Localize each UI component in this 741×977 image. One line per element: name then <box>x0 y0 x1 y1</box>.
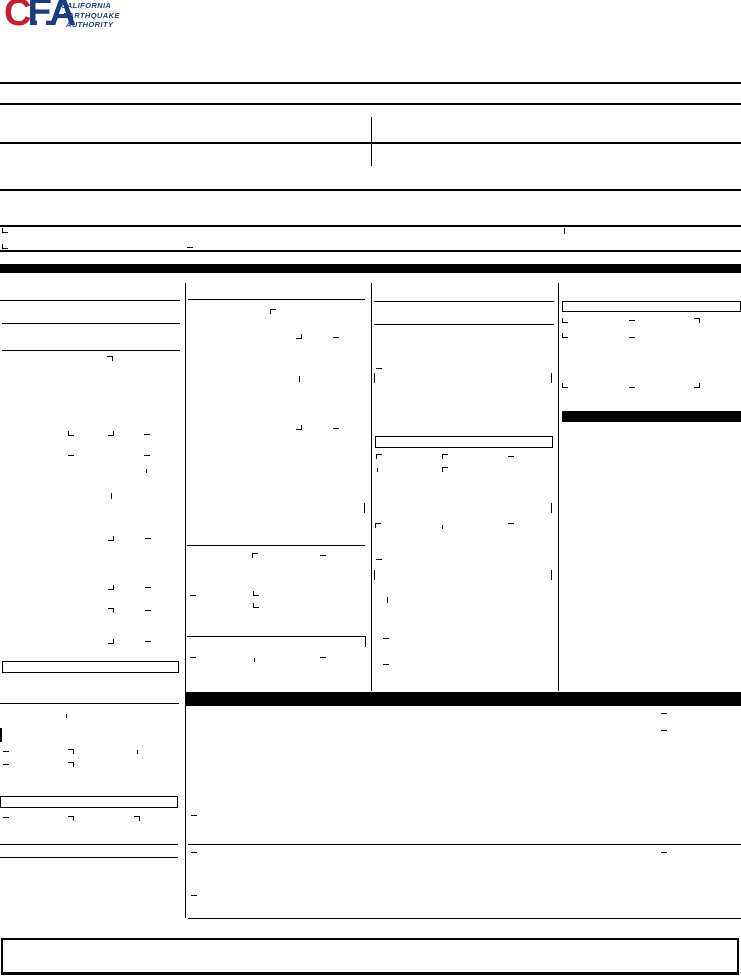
text-fragment <box>376 559 382 560</box>
text-fragment <box>383 664 389 665</box>
text-fragment <box>562 383 568 388</box>
text-fragment <box>68 762 74 767</box>
text-fragment <box>374 570 375 580</box>
text-fragment <box>253 591 259 596</box>
rule-line <box>0 857 178 858</box>
text-fragment <box>68 749 74 754</box>
text-fragment <box>376 454 382 459</box>
text-fragment <box>145 641 151 642</box>
text-fragment <box>191 815 197 816</box>
rule-line <box>374 324 554 325</box>
text-fragment <box>191 852 197 853</box>
section-header-bar <box>185 692 741 706</box>
text-fragment <box>0 728 2 742</box>
text-fragment <box>145 610 151 611</box>
text-fragment <box>146 469 147 473</box>
text-fragment <box>376 368 382 369</box>
rule-line <box>0 703 179 704</box>
text-fragment <box>254 658 255 662</box>
text-fragment <box>2 228 8 233</box>
rule-line <box>188 299 365 300</box>
divider-line <box>558 283 559 691</box>
field-box <box>2 661 179 673</box>
text-fragment <box>270 309 276 314</box>
field-box <box>562 301 741 312</box>
rule-line <box>374 301 554 302</box>
section-header-bar <box>0 264 741 273</box>
rule-line <box>2 323 180 324</box>
rule-line <box>0 189 741 191</box>
text-fragment <box>508 456 514 457</box>
text-fragment <box>111 493 112 499</box>
text-fragment <box>144 434 150 435</box>
divider-line <box>185 283 186 918</box>
text-fragment <box>3 751 9 752</box>
text-fragment <box>629 387 635 388</box>
divider-line <box>371 117 372 166</box>
text-fragment <box>108 608 114 613</box>
rule-line <box>187 545 365 546</box>
field-box <box>0 796 178 808</box>
text-fragment <box>442 454 448 459</box>
text-fragment <box>144 455 150 456</box>
section-header-bar <box>562 411 741 422</box>
text-fragment <box>320 555 326 556</box>
text-fragment <box>134 816 140 821</box>
text-fragment <box>364 503 365 513</box>
text-fragment <box>564 228 565 234</box>
text-fragment <box>383 638 389 639</box>
text-fragment <box>108 585 114 590</box>
text-fragment <box>661 730 667 731</box>
text-fragment <box>3 817 9 818</box>
rule-line <box>0 225 741 227</box>
text-fragment <box>253 603 259 608</box>
text-fragment <box>108 536 114 541</box>
text-fragment <box>145 587 151 588</box>
form-canvas <box>0 0 741 977</box>
text-fragment <box>296 334 302 339</box>
text-fragment <box>3 764 9 765</box>
rule-line <box>187 636 365 637</box>
rule-line <box>188 844 741 845</box>
text-fragment <box>107 356 113 361</box>
divider-line <box>371 283 372 691</box>
rule-line <box>0 82 741 84</box>
text-fragment <box>68 455 74 456</box>
text-fragment <box>694 318 700 323</box>
text-fragment <box>2 244 8 249</box>
text-fragment <box>68 431 74 436</box>
text-fragment <box>551 570 552 580</box>
field-box <box>375 436 553 448</box>
text-fragment <box>562 318 568 323</box>
text-fragment <box>299 376 300 382</box>
rule-line <box>0 103 741 105</box>
text-fragment <box>137 750 138 754</box>
text-fragment <box>333 428 339 429</box>
text-fragment <box>320 657 326 658</box>
text-fragment <box>191 895 197 896</box>
text-fragment <box>375 523 381 528</box>
text-fragment <box>187 247 193 248</box>
text-fragment <box>377 468 378 472</box>
text-fragment <box>629 337 635 338</box>
text-fragment <box>66 714 67 718</box>
text-fragment <box>661 852 667 853</box>
rule-line <box>2 350 180 351</box>
form-page: CEA CALIFORNIA EARTHQUAKE AUTHORITY <box>0 0 741 977</box>
text-fragment <box>145 538 151 539</box>
text-fragment <box>629 320 635 321</box>
text-fragment <box>108 431 114 436</box>
text-fragment <box>562 333 568 338</box>
text-fragment <box>252 553 258 558</box>
text-fragment <box>333 337 339 338</box>
text-fragment <box>551 503 552 513</box>
text-fragment <box>374 373 375 383</box>
rule-line <box>0 250 741 252</box>
text-fragment <box>296 425 302 430</box>
text-fragment <box>68 816 74 821</box>
text-fragment <box>508 523 514 524</box>
text-fragment <box>108 639 114 644</box>
text-fragment <box>661 713 667 714</box>
text-fragment <box>442 525 443 529</box>
text-fragment <box>190 595 196 596</box>
rule-line <box>0 300 180 301</box>
text-fragment <box>387 597 388 603</box>
text-fragment <box>442 467 448 472</box>
divider-line <box>365 636 366 647</box>
text-fragment <box>694 383 700 388</box>
text-fragment <box>551 373 552 383</box>
text-fragment <box>190 657 196 658</box>
field-box <box>1 938 739 975</box>
rule-line <box>0 844 178 845</box>
rule-line <box>188 918 741 919</box>
